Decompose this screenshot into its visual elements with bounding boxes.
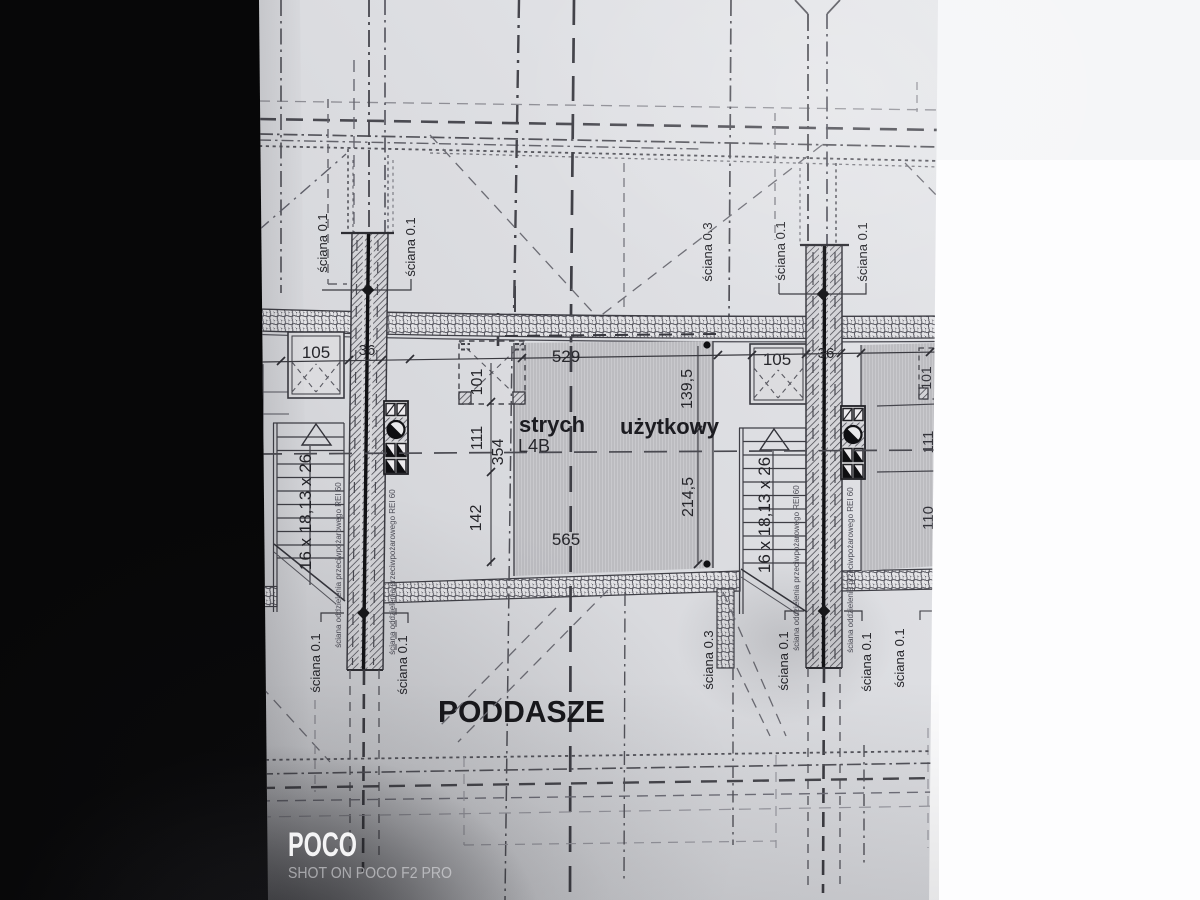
svg-text:214,5: 214,5 xyxy=(680,477,697,517)
svg-text:użytkowy: użytkowy xyxy=(620,414,720,439)
svg-text:529: 529 xyxy=(552,347,580,366)
svg-text:565: 565 xyxy=(552,530,580,549)
svg-text:SHOT ON POCO F2 PRO: SHOT ON POCO F2 PRO xyxy=(288,865,452,882)
svg-text:105: 105 xyxy=(302,343,330,362)
svg-text:111: 111 xyxy=(469,426,486,450)
svg-text:36: 36 xyxy=(818,345,835,362)
svg-text:ściana 0.1: ściana 0.1 xyxy=(315,213,330,272)
svg-text:strych: strych xyxy=(519,412,585,437)
svg-text:101: 101 xyxy=(918,366,934,390)
svg-text:36: 36 xyxy=(359,342,376,359)
svg-text:101: 101 xyxy=(469,369,486,396)
svg-text:POCO: POCO xyxy=(288,826,357,864)
svg-text:139,5: 139,5 xyxy=(679,369,696,409)
svg-text:105: 105 xyxy=(763,350,791,369)
svg-text:ściana 0.1: ściana 0.1 xyxy=(403,217,418,276)
